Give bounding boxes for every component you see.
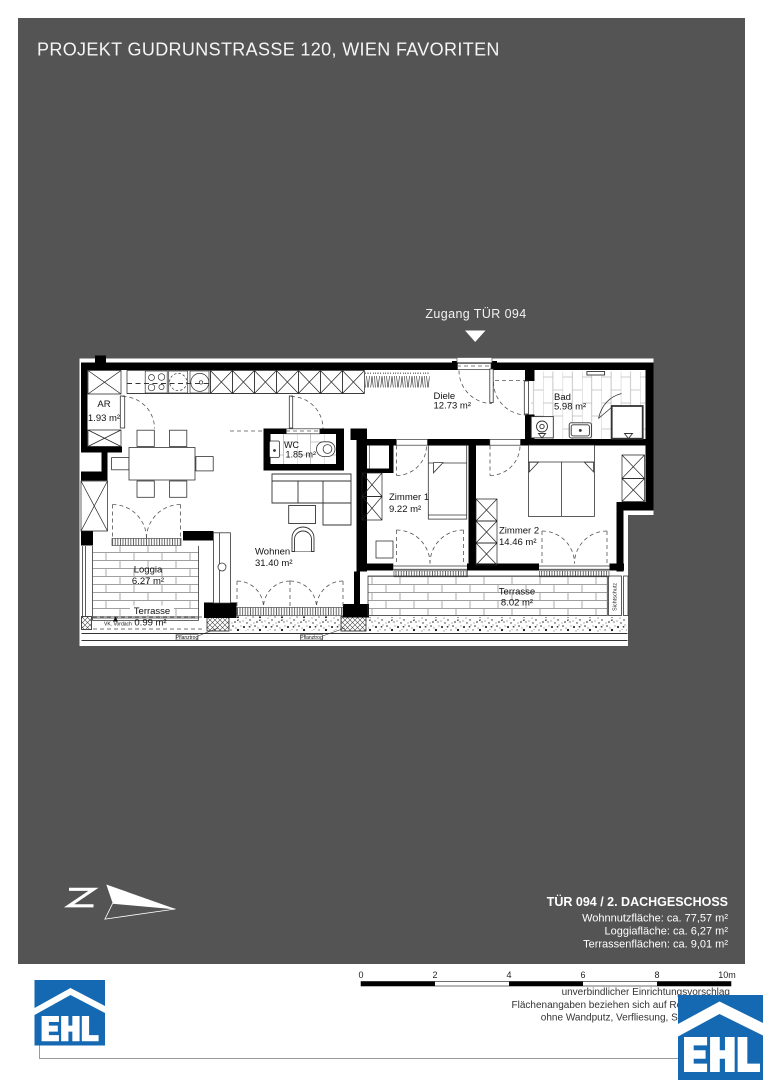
svg-text:6.27 m²: 6.27 m² (132, 576, 164, 587)
svg-text:Terrasse: Terrasse (499, 587, 535, 598)
svg-text:2: 2 (432, 970, 437, 980)
svg-text:Loggiafläche: ca. 6,27 m²: Loggiafläche: ca. 6,27 m² (604, 926, 728, 938)
svg-text:31.40 m²: 31.40 m² (255, 558, 293, 569)
svg-text:TÜR 094 / 2. DACHGESCHOSS: TÜR 094 / 2. DACHGESCHOSS (547, 894, 728, 909)
svg-text:Wohnnutzfläche: ca. 77,57 m²: Wohnnutzfläche: ca. 77,57 m² (582, 913, 728, 925)
svg-text:5.98 m²: 5.98 m² (554, 402, 586, 413)
svg-text:Zugang TÜR 094: Zugang TÜR 094 (425, 307, 526, 321)
svg-text:AR: AR (97, 399, 110, 410)
svg-text:0.99 m²: 0.99 m² (134, 618, 166, 629)
svg-text:1.85 m²: 1.85 m² (286, 450, 317, 460)
svg-text:PROJEKT GUDRUNSTRASSE 120, WIE: PROJEKT GUDRUNSTRASSE 120, WIEN FAVORITE… (37, 40, 500, 60)
svg-text:Sichtschutz: Sichtschutz (613, 583, 619, 611)
svg-text:Wohnen: Wohnen (255, 547, 290, 558)
svg-text:10m: 10m (718, 970, 736, 980)
svg-text:1.93 m²: 1.93 m² (88, 413, 120, 424)
svg-text:4: 4 (506, 970, 511, 980)
svg-text:8.02 m²: 8.02 m² (501, 598, 533, 609)
svg-text:0: 0 (358, 970, 363, 980)
svg-text:Zimmer 2: Zimmer 2 (499, 526, 539, 537)
svg-text:Pflanztrog: Pflanztrog (300, 635, 323, 641)
svg-text:WC: WC (284, 440, 299, 450)
svg-text:14.46 m²: 14.46 m² (499, 537, 537, 548)
svg-text:Terrasse: Terrasse (134, 606, 170, 617)
svg-text:Terrassenflächen: ca. 9,01 m²: Terrassenflächen: ca. 9,01 m² (583, 939, 728, 951)
svg-text:12.73 m²: 12.73 m² (434, 401, 472, 412)
svg-text:8: 8 (654, 970, 659, 980)
svg-text:VK. Vordach: VK. Vordach (104, 622, 132, 628)
svg-text:Pflanztrog: Pflanztrog (176, 635, 199, 641)
svg-text:9.22 m²: 9.22 m² (389, 504, 421, 515)
svg-text:6: 6 (580, 970, 585, 980)
svg-text:Zimmer 1: Zimmer 1 (389, 492, 429, 503)
svg-text:Loggia: Loggia (134, 565, 163, 576)
